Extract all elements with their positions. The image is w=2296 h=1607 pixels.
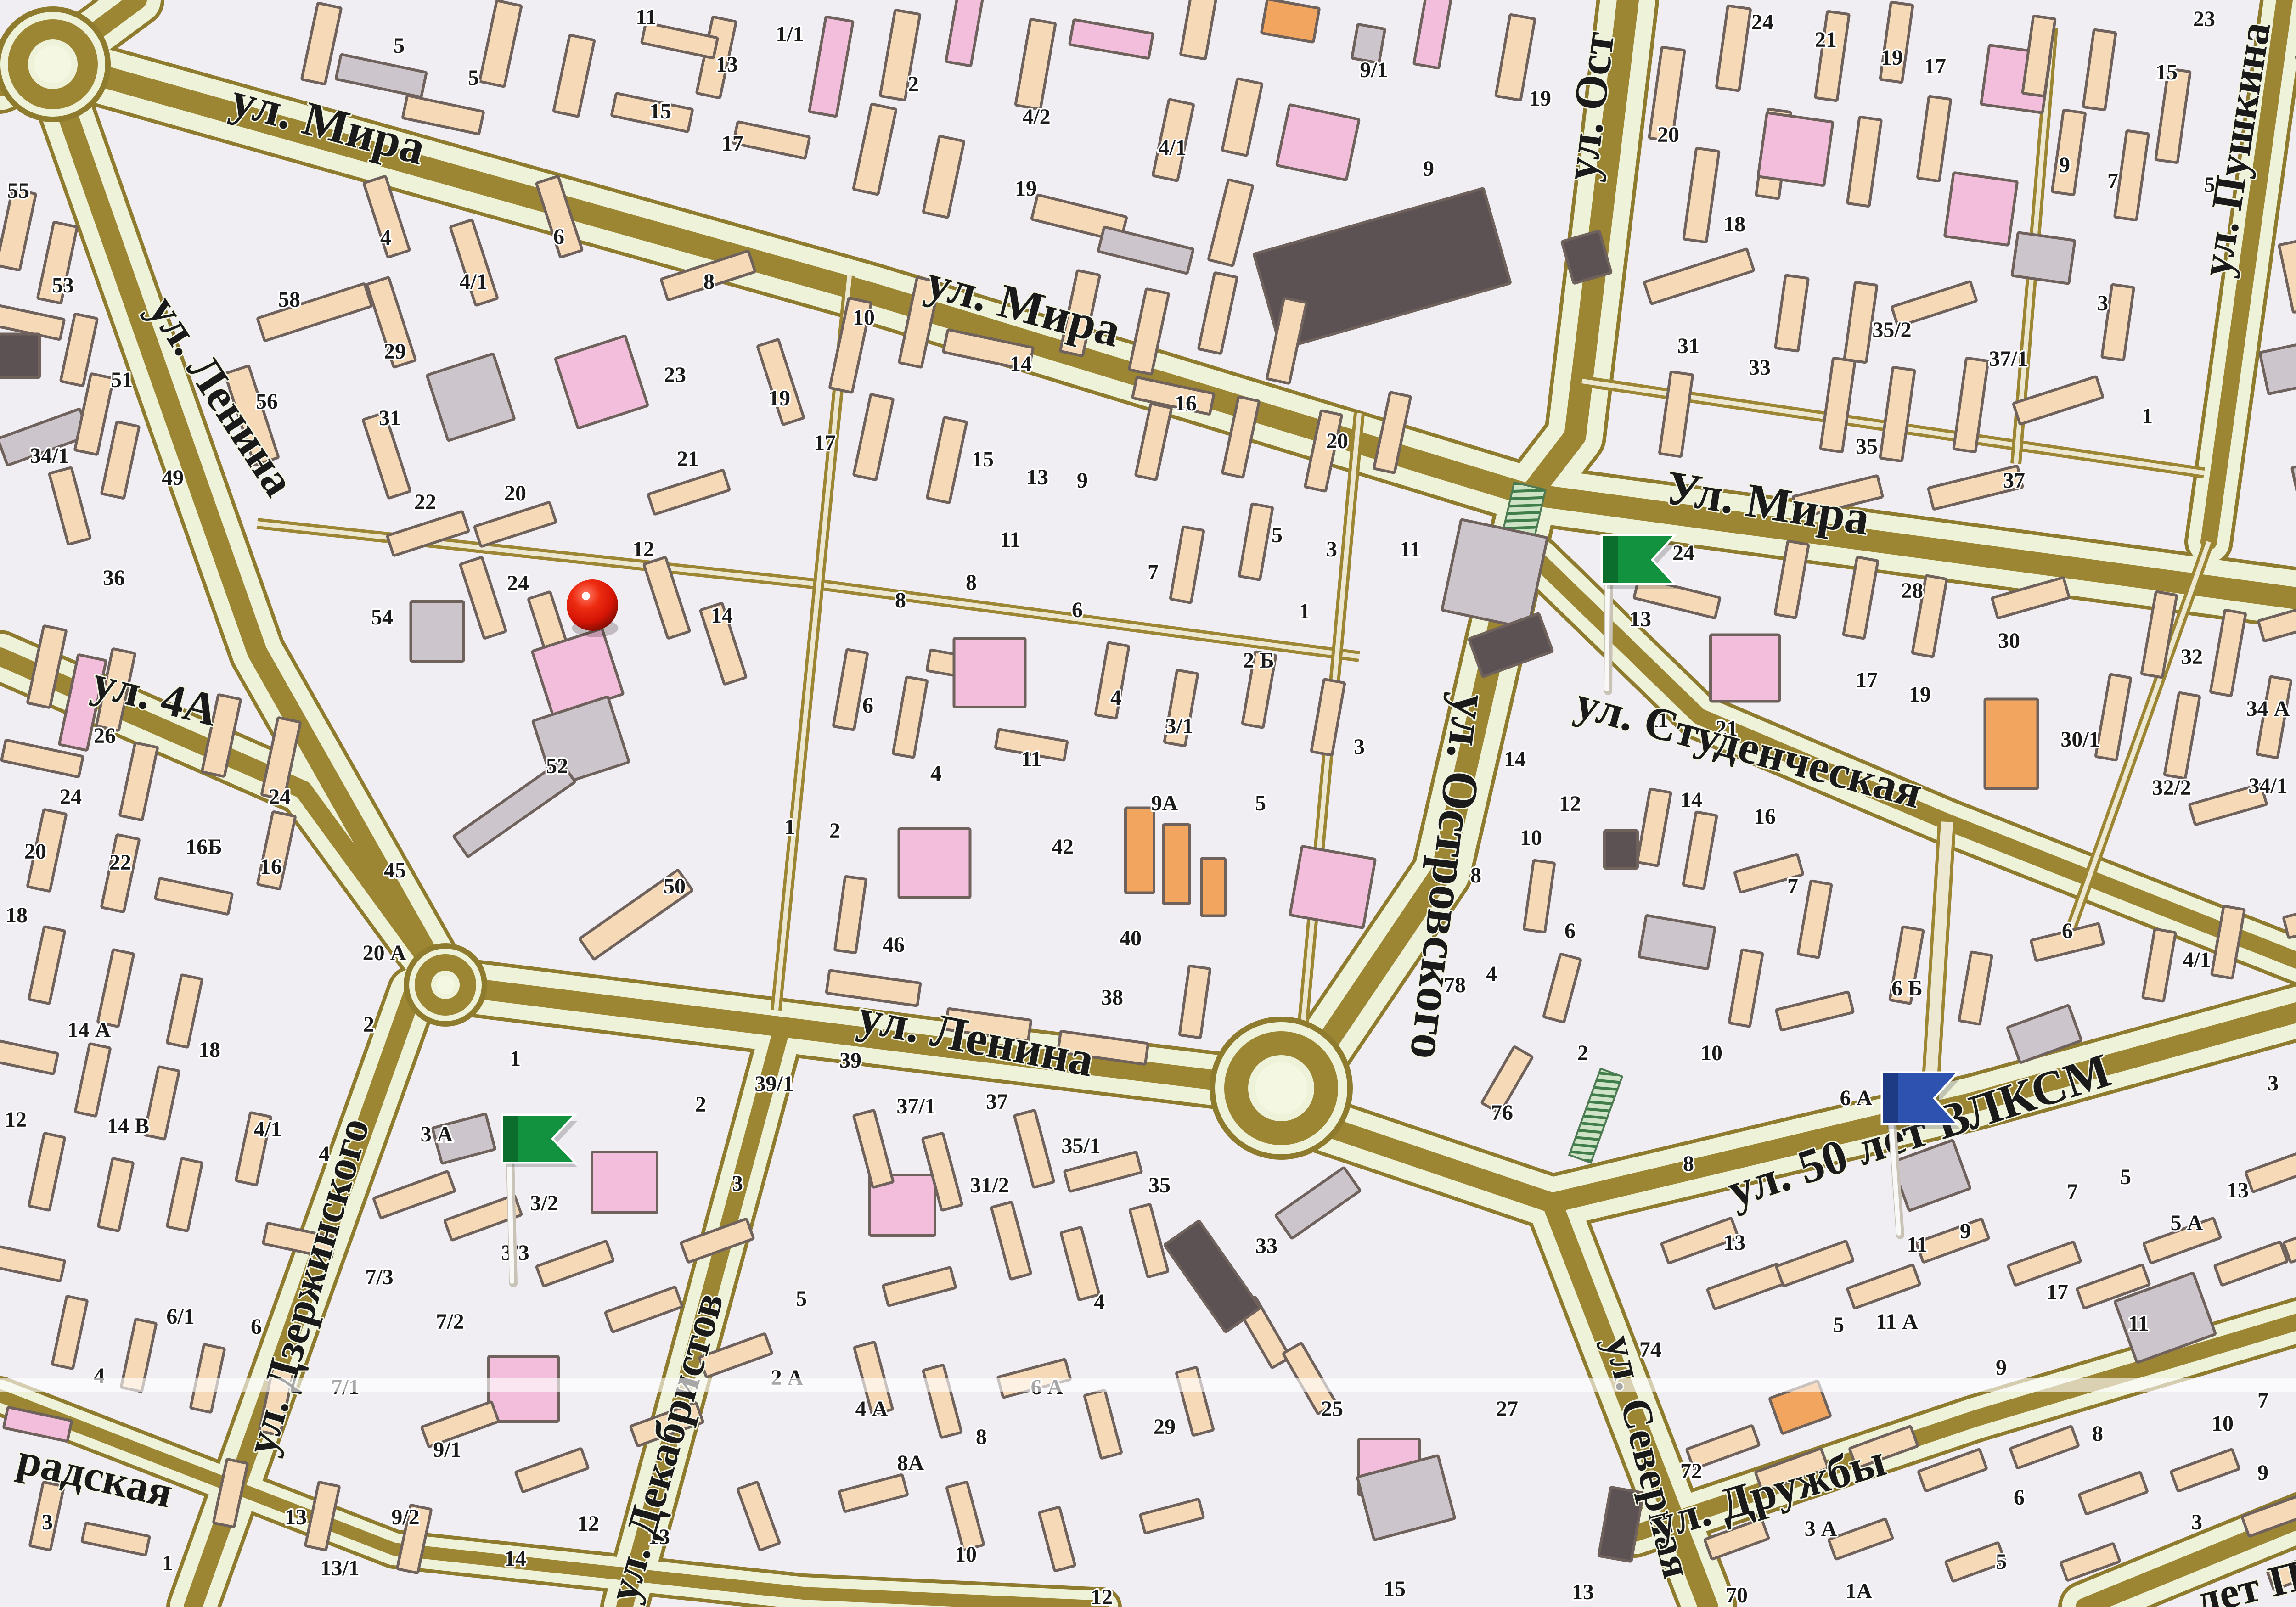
- house-number: 2: [695, 1092, 706, 1117]
- house-number: 9/2: [391, 1505, 419, 1529]
- house-number: 9: [1960, 1219, 1971, 1243]
- house-number: 35: [1148, 1173, 1171, 1197]
- house-number: 53: [52, 273, 74, 298]
- house-number: 3/1: [1165, 714, 1193, 738]
- roundabout-1: [0, 9, 108, 119]
- house-number: 3 А: [1805, 1517, 1837, 1541]
- building: [1442, 519, 1548, 629]
- building: [1945, 173, 2017, 245]
- house-number: 37/1: [1989, 347, 2028, 371]
- house-number: 2 Б: [1243, 648, 1274, 673]
- house-number: 31: [1677, 334, 1699, 358]
- house-number: 40: [1120, 926, 1142, 950]
- house-number: 20 А: [363, 941, 406, 965]
- house-number: 55: [7, 179, 29, 203]
- house-number: 25: [1321, 1397, 1343, 1421]
- house-number: 8: [703, 270, 715, 294]
- house-number: 14 В: [107, 1114, 149, 1138]
- house-number: 4/1: [459, 270, 487, 294]
- house-number: 14: [711, 603, 733, 628]
- house-number: 7: [1148, 560, 1159, 584]
- house-number: 70: [1726, 1583, 1748, 1607]
- building: [2012, 232, 2075, 283]
- house-number: 13: [716, 52, 738, 77]
- house-number: 3: [2268, 1071, 2279, 1096]
- house-number: 20: [504, 481, 526, 506]
- house-number: 2: [829, 819, 840, 843]
- house-number: 5: [1833, 1313, 1844, 1337]
- house-number: 10: [2212, 1411, 2234, 1436]
- building: [0, 334, 39, 378]
- house-number: 46: [883, 933, 905, 957]
- house-number: 49: [162, 466, 184, 490]
- house-number: 9/1: [1360, 58, 1388, 82]
- house-number: 34 А: [2246, 697, 2290, 721]
- ball-highlight: [582, 592, 590, 600]
- house-number: 28: [1901, 579, 1923, 603]
- house-number: 29: [384, 339, 406, 364]
- house-number: 5: [1255, 791, 1266, 815]
- house-number: 9: [2059, 153, 2070, 177]
- house-number: 10: [1520, 826, 1542, 850]
- house-number: 42: [1052, 835, 1074, 859]
- building: [1711, 635, 1779, 702]
- house-number: 12: [1091, 1585, 1113, 1607]
- house-number: 9: [2257, 1461, 2268, 1485]
- house-number: 6/1: [166, 1304, 194, 1329]
- house-number: 24: [1751, 10, 1773, 34]
- house-number: 10: [955, 1542, 977, 1567]
- house-number: 9/1: [433, 1438, 461, 1462]
- house-number: 35/2: [1872, 318, 1911, 342]
- house-number: 15: [972, 447, 994, 472]
- house-number: 39/1: [754, 1072, 793, 1096]
- house-number: 16Б: [186, 835, 222, 859]
- house-number: 13: [1629, 607, 1651, 631]
- house-number: 4: [1110, 686, 1121, 710]
- house-number: 39: [839, 1048, 861, 1073]
- house-number: 4 А: [855, 1397, 888, 1421]
- house-number: 4/2: [1022, 105, 1050, 129]
- house-number: 3/2: [530, 1191, 558, 1215]
- house-number: 6: [251, 1315, 262, 1339]
- house-number: 11: [1907, 1232, 1927, 1257]
- house-number: 17: [2046, 1280, 2068, 1304]
- house-number: 19: [1529, 86, 1551, 111]
- house-number: 6: [2062, 919, 2073, 943]
- house-number: 17: [721, 131, 743, 156]
- house-number: 4: [380, 225, 391, 250]
- house-number: 23: [2193, 7, 2215, 31]
- house-number: 4/1: [253, 1117, 281, 1141]
- house-number: 32/2: [2152, 775, 2191, 800]
- red-ball-marker[interactable]: [567, 579, 618, 637]
- house-number: 3: [2191, 1510, 2202, 1534]
- scan-artifact-band: [0, 1378, 2296, 1392]
- house-number: 19: [768, 386, 790, 410]
- house-number: 30/1: [2060, 727, 2099, 752]
- house-number: 31: [379, 406, 401, 430]
- house-number: 18: [1723, 212, 1745, 236]
- house-number: 11: [1000, 528, 1020, 552]
- house-number: 52: [546, 754, 568, 778]
- house-number: 11: [1021, 747, 1041, 771]
- house-number: 7/3: [365, 1265, 393, 1289]
- house-number: 1: [784, 815, 795, 839]
- house-number: 2: [908, 72, 919, 96]
- house-number: 5: [468, 66, 479, 90]
- roundabout-0: [1212, 1019, 1350, 1157]
- house-number: 6: [1564, 919, 1576, 943]
- house-number: 7: [1787, 874, 1798, 899]
- house-number: 24: [507, 571, 529, 596]
- house-number: 6: [553, 225, 564, 249]
- flag-fold: [1883, 1073, 1898, 1123]
- house-number: 13: [1026, 465, 1048, 489]
- building: [1352, 24, 1385, 63]
- house-number: 8: [2092, 1422, 2103, 1446]
- house-number: 11 А: [1876, 1309, 1918, 1334]
- house-number: 9А: [1151, 791, 1178, 815]
- map-svg: 55535134/14958562931222044/1682319215511…: [0, 0, 2296, 1607]
- house-number: 4: [1094, 1290, 1105, 1314]
- house-number: 10: [1700, 1041, 1722, 1065]
- house-number: 4/1: [1158, 135, 1186, 160]
- house-number: 11: [1400, 537, 1420, 562]
- building: [954, 638, 1025, 707]
- house-number: 17: [1924, 54, 1946, 79]
- house-number: 5: [2120, 1165, 2131, 1189]
- house-number: 3: [42, 1510, 53, 1534]
- house-number: 18: [6, 903, 28, 927]
- house-number: 13: [1723, 1231, 1745, 1255]
- building: [1985, 699, 2038, 789]
- house-number: 20: [24, 839, 46, 864]
- house-number: 9: [1996, 1355, 2007, 1380]
- house-number: 8А: [897, 1451, 924, 1475]
- house-number: 12: [5, 1107, 27, 1132]
- house-number: 35: [1856, 434, 1878, 459]
- house-number: 3: [1326, 537, 1337, 562]
- house-number: 24: [60, 785, 82, 809]
- house-number: 22: [414, 490, 436, 514]
- house-number: 33: [1255, 1234, 1277, 1258]
- house-number: 24: [1672, 541, 1694, 565]
- building: [1261, 0, 1319, 42]
- house-number: 14 А: [68, 1018, 111, 1042]
- house-number: 1/1: [776, 22, 804, 46]
- house-number: 12: [632, 537, 654, 562]
- roundabout-2: [406, 946, 484, 1024]
- house-number: 1: [2142, 404, 2153, 428]
- ball-icon: [567, 579, 618, 631]
- house-number: 34/1: [2248, 774, 2287, 798]
- house-number: 35/1: [1061, 1134, 1100, 1158]
- house-number: 2: [1577, 1041, 1588, 1065]
- house-number: 37: [986, 1090, 1008, 1114]
- house-number: 17: [1856, 668, 1878, 692]
- house-number: 20: [1326, 429, 1348, 453]
- city-map: 55535134/14958562931222044/1682319215511…: [0, 0, 2296, 1607]
- house-number: 4: [1486, 962, 1497, 986]
- house-number: 5 А: [2171, 1211, 2203, 1235]
- house-number: 1: [510, 1046, 521, 1071]
- house-number: 5: [1272, 523, 1283, 547]
- house-number: 16: [1754, 804, 1776, 829]
- house-number: 16: [260, 854, 282, 879]
- house-number: 2: [363, 1012, 374, 1037]
- house-number: 19: [1015, 176, 1037, 201]
- house-number: 6: [862, 693, 873, 718]
- house-number: 58: [278, 287, 300, 312]
- house-number: 3: [2097, 291, 2108, 315]
- house-number: 1: [162, 1551, 173, 1575]
- flag-fold: [1603, 536, 1618, 583]
- house-number: 14: [1010, 352, 1032, 376]
- house-number: 8: [976, 1425, 987, 1449]
- house-number: 54: [371, 605, 393, 629]
- building: [1277, 105, 1359, 180]
- house-number: 15: [649, 99, 671, 124]
- house-number: 13: [285, 1505, 307, 1529]
- flag-fold: [503, 1116, 518, 1162]
- house-number: 13: [1572, 1580, 1594, 1604]
- house-number: 12: [577, 1511, 599, 1536]
- building: [1125, 808, 1154, 893]
- house-number: 51: [111, 368, 133, 392]
- building: [1604, 831, 1638, 868]
- house-number: 5: [394, 34, 405, 58]
- building: [1290, 846, 1375, 928]
- house-number: 22: [109, 850, 131, 875]
- house-number: 23: [664, 363, 686, 387]
- house-number: 76: [1491, 1101, 1513, 1125]
- house-number: 11: [2128, 1311, 2149, 1336]
- house-number: 8: [895, 588, 906, 612]
- house-number: 1: [1299, 599, 1310, 624]
- building: [1201, 859, 1225, 916]
- house-number: 7: [2107, 169, 2118, 193]
- house-number: 29: [1154, 1415, 1176, 1439]
- house-number: 38: [1101, 985, 1123, 1010]
- house-number: 45: [384, 858, 406, 882]
- house-number: 12: [1559, 792, 1581, 816]
- house-number: 33: [1749, 355, 1771, 380]
- house-number: 72: [1680, 1459, 1702, 1483]
- house-number: 4/1: [2183, 948, 2211, 972]
- house-number: 32: [2181, 645, 2203, 669]
- house-number: 13: [2227, 1178, 2249, 1202]
- house-number: 19: [1881, 45, 1903, 70]
- house-number: 14: [1680, 788, 1702, 812]
- house-number: 50: [664, 874, 686, 899]
- building: [592, 1152, 657, 1213]
- house-number: 9: [1423, 157, 1434, 181]
- building: [899, 829, 970, 898]
- house-number: 8: [1683, 1152, 1694, 1176]
- house-number: 6: [2014, 1485, 2025, 1510]
- house-number: 3 А: [421, 1122, 453, 1146]
- house-number: 30: [1998, 629, 2020, 653]
- house-number: 14: [504, 1546, 526, 1571]
- building: [1163, 825, 1190, 904]
- building: [411, 601, 464, 661]
- house-number: 5: [1996, 1550, 2007, 1574]
- house-number: 11: [636, 5, 656, 29]
- house-number: 10: [853, 305, 875, 330]
- house-number: 9: [1077, 468, 1088, 493]
- house-number: 3: [732, 1171, 743, 1196]
- building: [1758, 113, 1833, 186]
- house-number: 27: [1496, 1397, 1518, 1421]
- house-number: 21: [1815, 28, 1837, 52]
- house-number: 7/2: [436, 1309, 464, 1334]
- house-number: 17: [814, 431, 836, 455]
- house-number: 31/2: [970, 1173, 1009, 1197]
- house-number: 37/1: [896, 1094, 935, 1118]
- house-number: 4: [930, 761, 941, 786]
- house-number: 8: [966, 570, 977, 595]
- house-number: 6 Б: [1891, 976, 1923, 1000]
- house-number: 24: [269, 785, 291, 809]
- house-number: 19: [1909, 682, 1931, 707]
- house-number: 7: [2067, 1180, 2078, 1204]
- house-number: 15: [2155, 60, 2178, 84]
- house-number: 16: [1175, 391, 1197, 416]
- house-number: 1А: [1846, 1579, 1873, 1603]
- house-number: 3: [1354, 735, 1365, 759]
- house-number: 6: [1072, 598, 1083, 622]
- house-number: 34/1: [30, 444, 69, 468]
- house-number: 6 А: [1840, 1086, 1873, 1110]
- house-number: 5: [796, 1287, 807, 1311]
- house-number: 36: [103, 566, 125, 590]
- house-number: 18: [198, 1038, 220, 1062]
- house-number: 26: [94, 724, 116, 748]
- house-number: 37: [2003, 468, 2025, 493]
- house-number: 15: [1384, 1577, 1406, 1601]
- house-number: 21: [677, 447, 699, 471]
- house-number: 14: [1504, 747, 1526, 771]
- house-number: 20: [1657, 123, 1679, 147]
- house-number: 13/1: [320, 1556, 359, 1580]
